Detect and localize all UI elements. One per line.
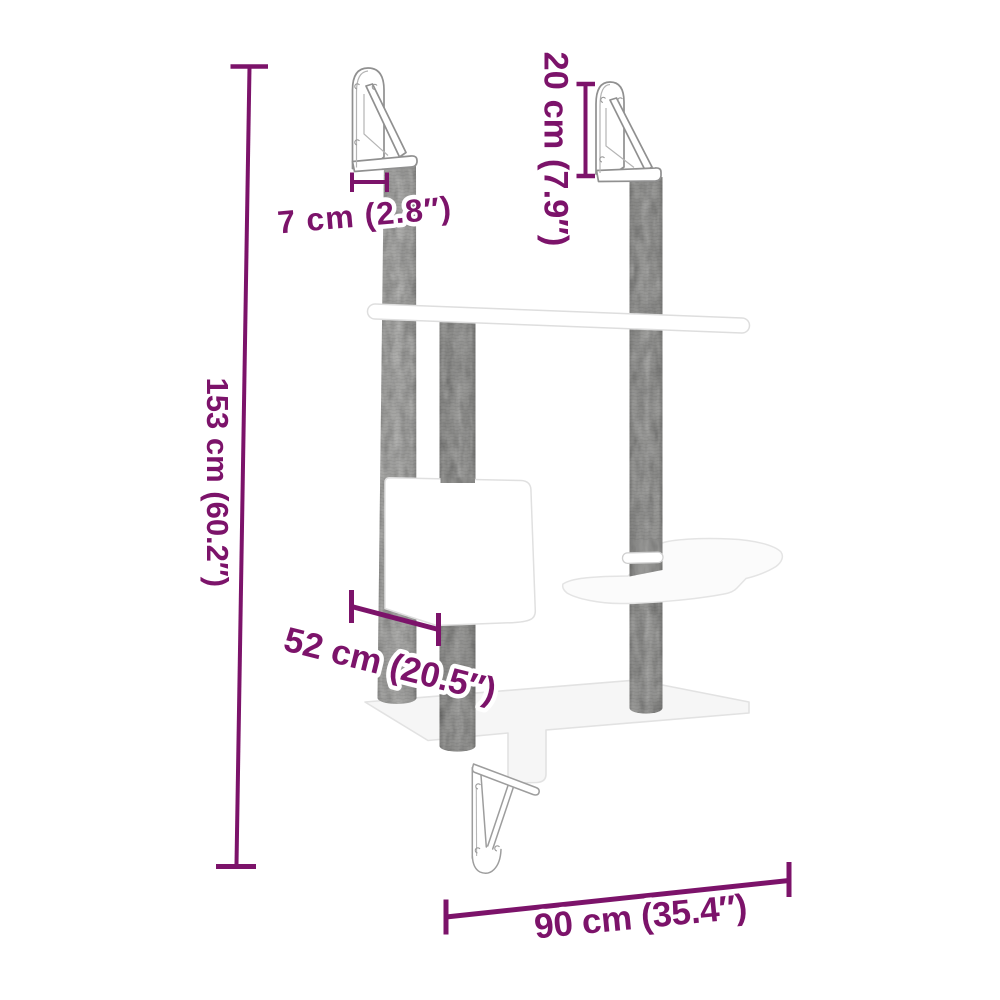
svg-text:153 cm (60.2″): 153 cm (60.2″) [200, 378, 235, 588]
svg-text:20 cm (7.9″): 20 cm (7.9″) [537, 52, 575, 247]
